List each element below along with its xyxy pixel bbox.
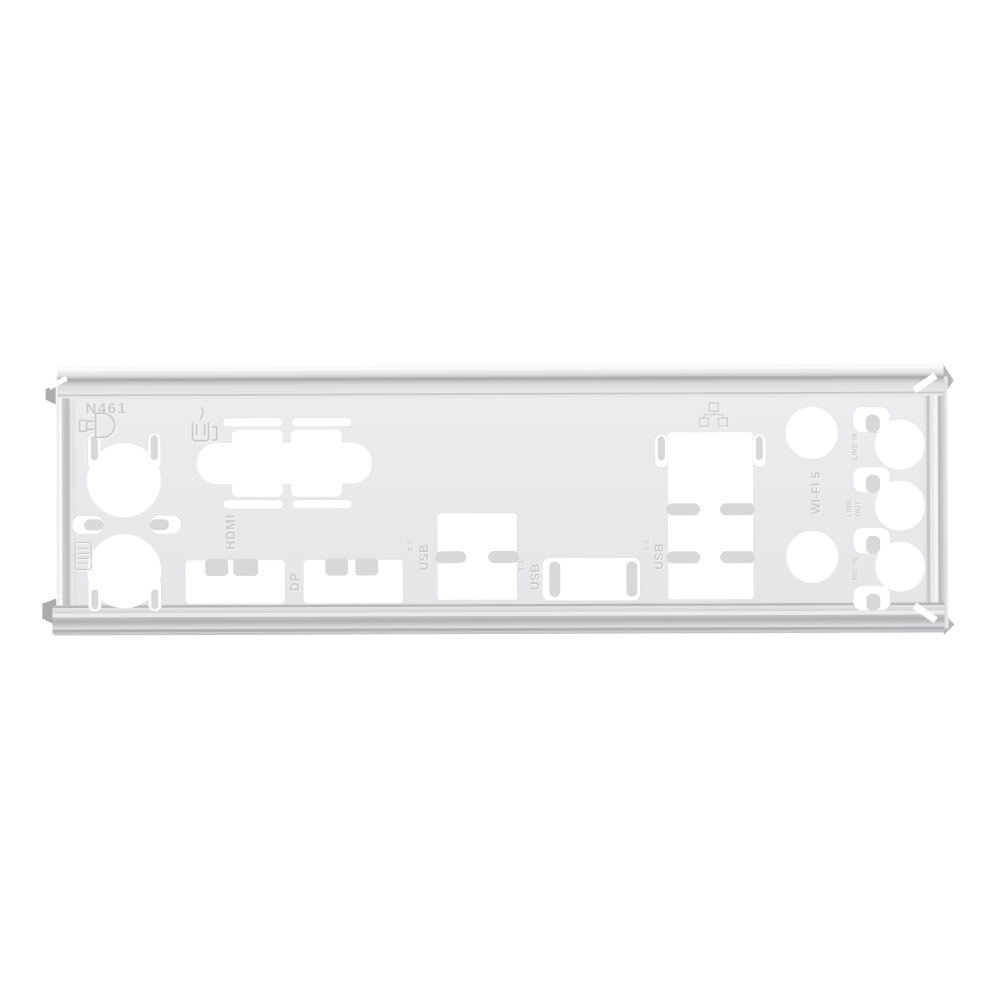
usb-version-stamp-2: 3.2 — [517, 560, 526, 572]
hdmi-stamp: HDMI — [224, 514, 238, 550]
line-in-stamp: LINE IN — [852, 433, 859, 460]
bend-finger — [151, 435, 158, 460]
line-out-stamp-line1: LINE — [847, 500, 854, 517]
bend-finger — [666, 503, 700, 515]
dp-stamp: DP — [288, 572, 302, 591]
wifi-antenna-hole-top — [786, 407, 838, 459]
bend-finger — [666, 551, 700, 563]
bend-finger — [658, 436, 665, 460]
audio-jack-hole-mic-in — [875, 542, 925, 592]
bend-finger — [355, 558, 378, 575]
bend-finger — [756, 436, 763, 460]
bend-finger — [91, 589, 98, 609]
usb-version-stamp-1: 3.2 — [406, 540, 415, 552]
wifi-antenna-hole-bottom — [786, 531, 838, 583]
usb-stamp-3: USB — [652, 543, 666, 570]
audio-jack-hole-line-out — [875, 481, 925, 531]
bend-finger — [720, 503, 755, 515]
audio-jack-hole-line-in — [875, 420, 925, 470]
dp-cutout — [303, 558, 403, 603]
usb-stamp-1: USB — [417, 544, 431, 571]
hdmi-cutout — [185, 559, 285, 604]
bend-finger — [488, 551, 519, 563]
mic-in-stamp: MIC IN — [853, 557, 860, 581]
io-shield-illustration: N461 HDMI DP USB 3.2 USB 3.2 — [0, 0, 1000, 1000]
bend-finger — [325, 559, 348, 576]
usb32-stack-cutout — [435, 513, 519, 600]
usb-center-cutout — [542, 558, 640, 601]
bend-finger — [626, 562, 637, 597]
lan-usb-tower-cutout — [655, 432, 767, 599]
bend-finger — [205, 559, 228, 576]
bend-finger — [549, 562, 560, 597]
bend-finger — [91, 435, 98, 460]
ps2-keyboard-cutout — [87, 433, 161, 517]
usb-stamp-2: USB — [528, 563, 542, 590]
wifi-stamp: WI-FI 5 — [809, 471, 823, 514]
bend-finger — [151, 589, 158, 609]
bend-finger — [233, 559, 258, 576]
line-out-stamp-line2: OUT — [856, 500, 863, 516]
bend-finger — [435, 551, 466, 563]
product-photo: N461 HDMI DP USB 3.2 USB 3.2 — [0, 0, 1000, 1000]
ps2-mouse-cutout — [87, 534, 161, 611]
usb-version-stamp-3: 3.2 — [642, 540, 651, 552]
bend-finger — [720, 551, 755, 563]
